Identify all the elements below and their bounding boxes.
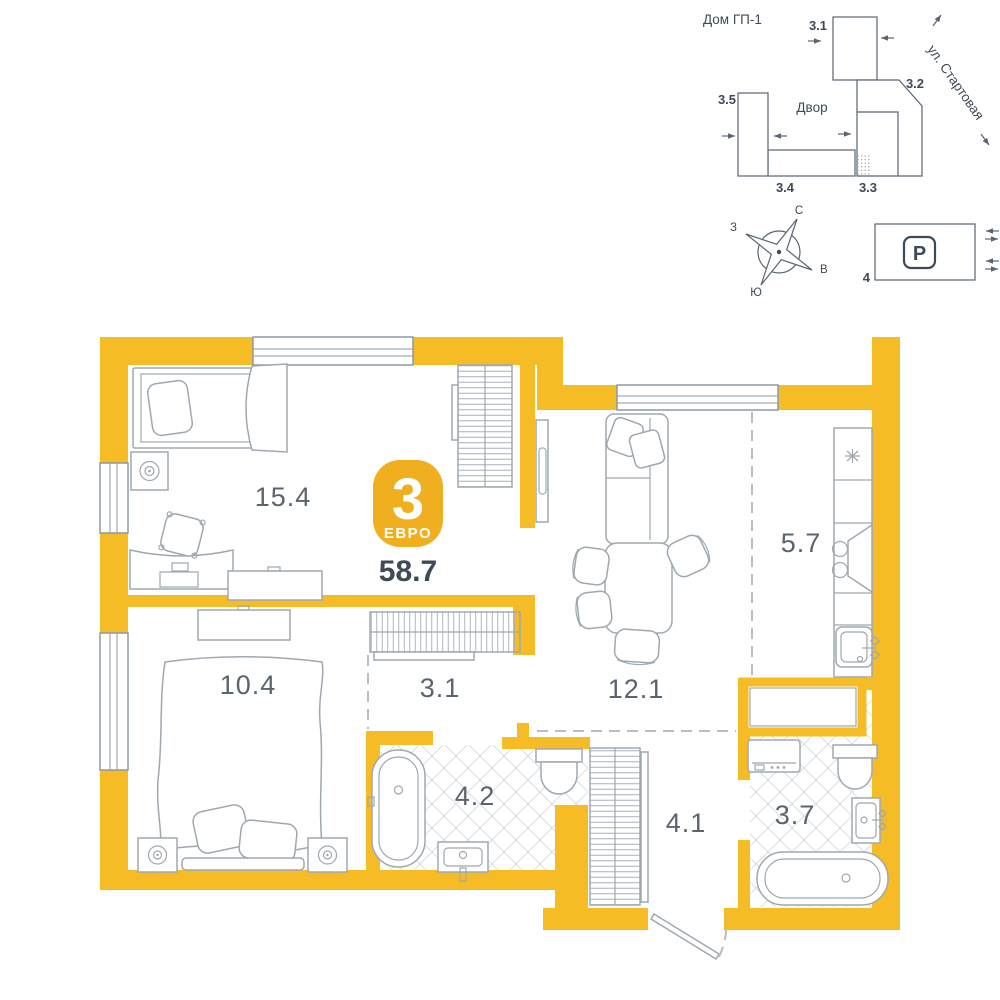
parking-symbol: P [913,243,926,265]
site-courtyard-label: Двор [796,100,827,115]
site-street-label: ул. Стартовая [924,42,987,122]
room-label-hallway: 3.1 [420,673,461,703]
street-arrow-up-icon [933,15,941,26]
room-label-bedroom: 10.4 [220,670,277,700]
window-icon [253,337,413,365]
nightstand-lamp [138,838,177,872]
dresser [198,606,290,640]
wardrobe [452,365,512,487]
bathtub [368,750,425,867]
compass-south-label: Ю [750,287,762,299]
dining-chair [571,546,611,587]
site-label-3-2: 3.2 [906,76,924,91]
room-label-bathroom-main: 3.7 [775,800,816,830]
sofa [605,414,668,544]
compass-north-label: С [795,205,803,217]
site-label-3-1: 3.1 [809,18,827,33]
tv-panel [536,420,548,522]
nightstand-lamp [131,452,168,490]
dining-table [605,543,672,633]
room-label-kitchen-living: 12.1 [608,674,665,704]
duct-shaft [744,682,862,732]
site-building-3-1 [833,17,877,80]
desk-chair [158,511,205,558]
site-label-3-3: 3.3 [859,180,877,195]
window-icon [100,633,128,770]
cooktop-icon [845,449,860,463]
window-icon [617,385,778,410]
window-icon [100,463,128,533]
nightstand-lamp [308,838,347,872]
desk [130,550,233,589]
badge-type-label: ЕВРО [384,525,432,542]
site-plan: Дом ГП-1 3.1 3.2 3.3 3.4 3.5 Двор ул. Ст… [703,12,999,299]
bathtub [757,852,888,905]
room-label-living-room: 15.4 [255,482,312,512]
site-building-3-4 [768,150,855,176]
site-building-3-3-section-marker [858,153,871,175]
dining-chair [574,590,613,629]
hall-wardrobe [370,612,520,660]
room-label-kitchen: 5.7 [781,528,822,558]
entrance-door [651,914,726,959]
parking-block: P 4 [863,224,999,285]
compass-rose-icon: С В З Ю [730,205,828,299]
apartment-badge: 3 ЕВРО 58.7 [373,460,443,588]
site-house-label: Дом ГП-1 [703,12,762,27]
badge-total-area: 58.7 [379,555,437,588]
room-label-entry-hall: 4.1 [666,808,707,838]
single-bed [133,364,287,452]
badge-rooms-count: 3 [392,467,424,532]
floor-plan: 15.4 10.4 3.1 12.1 5.7 4.2 4.1 3.7 3 ЕВР… [100,337,900,959]
site-label-3-5: 3.5 [718,92,736,107]
compass-west-label: З [730,222,737,234]
floor-plan-page: Дом ГП-1 3.1 3.2 3.3 3.4 3.5 Двор ул. Ст… [0,0,1000,1000]
dining-chair [614,629,660,666]
hall-wardrobe [590,748,648,905]
compass-east-label: В [820,264,828,276]
parking-number: 4 [863,270,871,285]
room-label-bathroom: 4.2 [455,781,496,811]
tv-stand [228,567,322,600]
site-building-3-5 [738,93,768,176]
site-label-3-4: 3.4 [776,180,795,195]
street-arrow-down-icon [981,134,989,145]
washing-machine [748,740,800,772]
plan-canvas: Дом ГП-1 3.1 3.2 3.3 3.4 3.5 Двор ул. Ст… [0,0,1000,1000]
